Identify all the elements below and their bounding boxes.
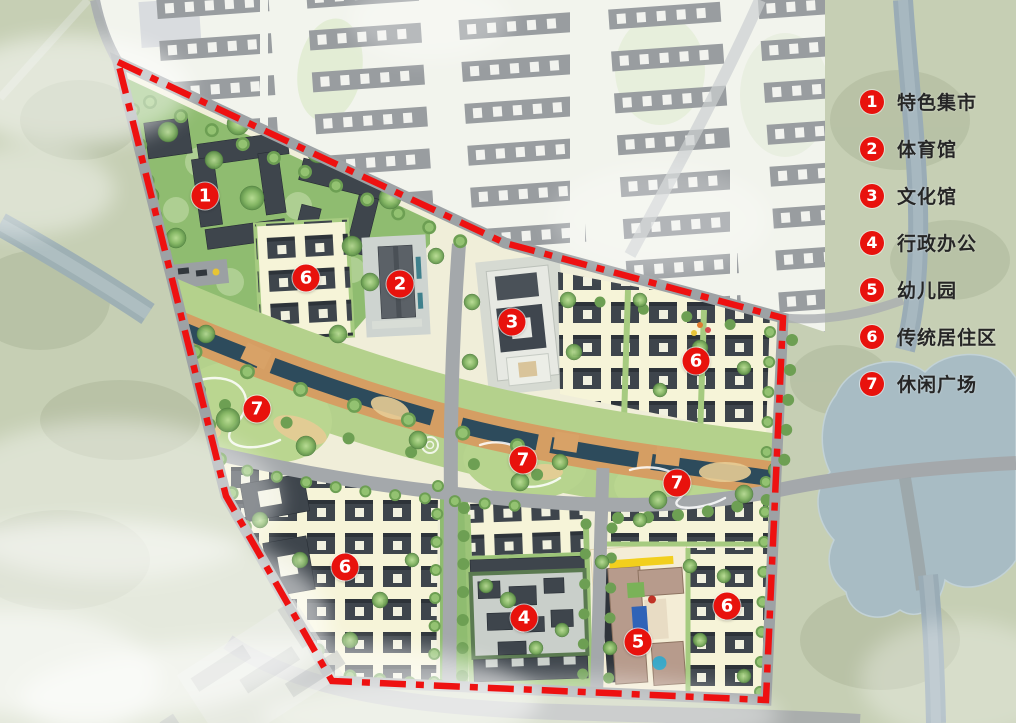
map-marker-6-5: 6 <box>293 265 320 292</box>
legend-number-badge: 3 <box>860 184 884 208</box>
legend-label: 休闲广场 <box>897 370 977 397</box>
map-marker-7-11: 7 <box>664 470 691 497</box>
legend: 1 特色集市 2 体育馆 3 文化馆 4 行政办公 5 幼儿园 6 传统居住区 … <box>860 88 997 397</box>
legend-item-5: 5 幼儿园 <box>860 276 997 303</box>
map-marker-7-9: 7 <box>244 396 271 423</box>
legend-label: 行政办公 <box>897 229 977 256</box>
map-marker-5-4: 5 <box>625 629 652 656</box>
legend-number-badge: 7 <box>860 372 884 396</box>
marker-number: 2 <box>394 275 407 293</box>
marker-number: 7 <box>517 451 530 469</box>
marker-number: 6 <box>690 352 703 370</box>
legend-number-badge: 6 <box>860 325 884 349</box>
marker-number: 7 <box>251 400 264 418</box>
marker-number: 6 <box>721 597 734 615</box>
legend-label: 特色集市 <box>897 88 977 115</box>
map-marker-4-3: 4 <box>511 605 538 632</box>
legend-item-1: 1 特色集市 <box>860 88 997 115</box>
legend-item-2: 2 体育馆 <box>860 135 997 162</box>
legend-item-7: 7 休闲广场 <box>860 370 997 397</box>
map-marker-6-8: 6 <box>714 593 741 620</box>
legend-label: 文化馆 <box>897 182 957 209</box>
marker-number: 7 <box>671 474 684 492</box>
legend-label: 传统居住区 <box>897 323 997 350</box>
legend-item-6: 6 传统居住区 <box>860 323 997 350</box>
map-marker-1-0: 1 <box>192 183 219 210</box>
legend-number-badge: 4 <box>860 231 884 255</box>
marker-number: 5 <box>632 633 645 651</box>
masterplan-canvas: 1 2 3 4 5 6 6 6 6 7 7 7 1 特色集市 2 体育馆 <box>0 0 1016 723</box>
map-marker-2-1: 2 <box>387 271 414 298</box>
map-marker-7-10: 7 <box>510 447 537 474</box>
legend-item-4: 4 行政办公 <box>860 229 997 256</box>
map-marker-6-7: 6 <box>332 554 359 581</box>
marker-number: 1 <box>199 187 212 205</box>
map-marker-6-6: 6 <box>683 348 710 375</box>
legend-label: 体育馆 <box>897 135 957 162</box>
legend-number-badge: 5 <box>860 278 884 302</box>
marker-number: 4 <box>518 609 531 627</box>
legend-number-badge: 1 <box>860 90 884 114</box>
map-marker-3-2: 3 <box>499 309 526 336</box>
legend-label: 幼儿园 <box>897 276 957 303</box>
legend-number-badge: 2 <box>860 137 884 161</box>
marker-number: 6 <box>339 558 352 576</box>
marker-number: 3 <box>506 313 519 331</box>
marker-number: 6 <box>300 269 313 287</box>
legend-item-3: 3 文化馆 <box>860 182 997 209</box>
